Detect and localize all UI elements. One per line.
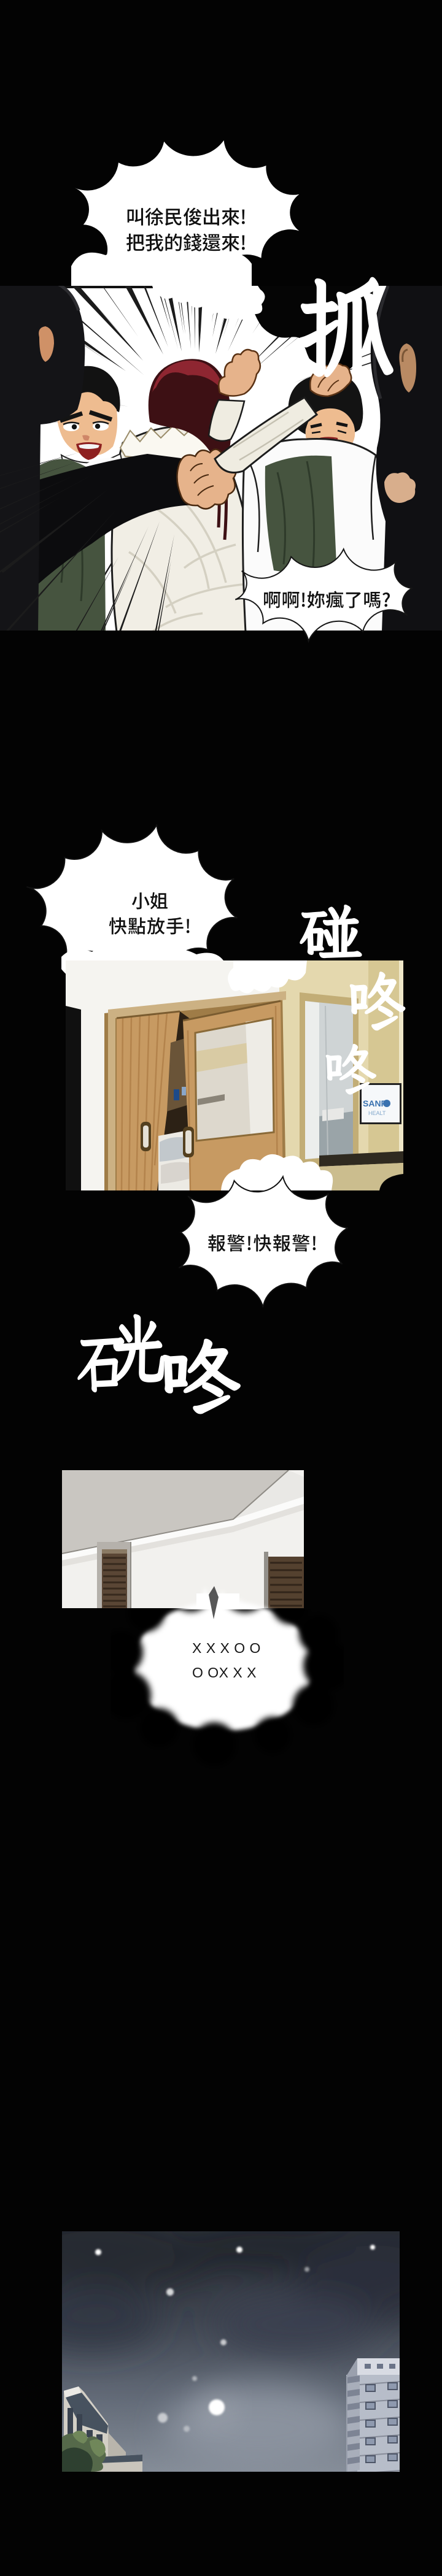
svg-text:SANF: SANF (363, 1098, 387, 1108)
svg-text:HEALT: HEALT (368, 1110, 386, 1116)
svg-text:O OX X X: O OX X X (192, 1665, 257, 1681)
svg-text:X X X O O: X X X O O (192, 1640, 261, 1656)
